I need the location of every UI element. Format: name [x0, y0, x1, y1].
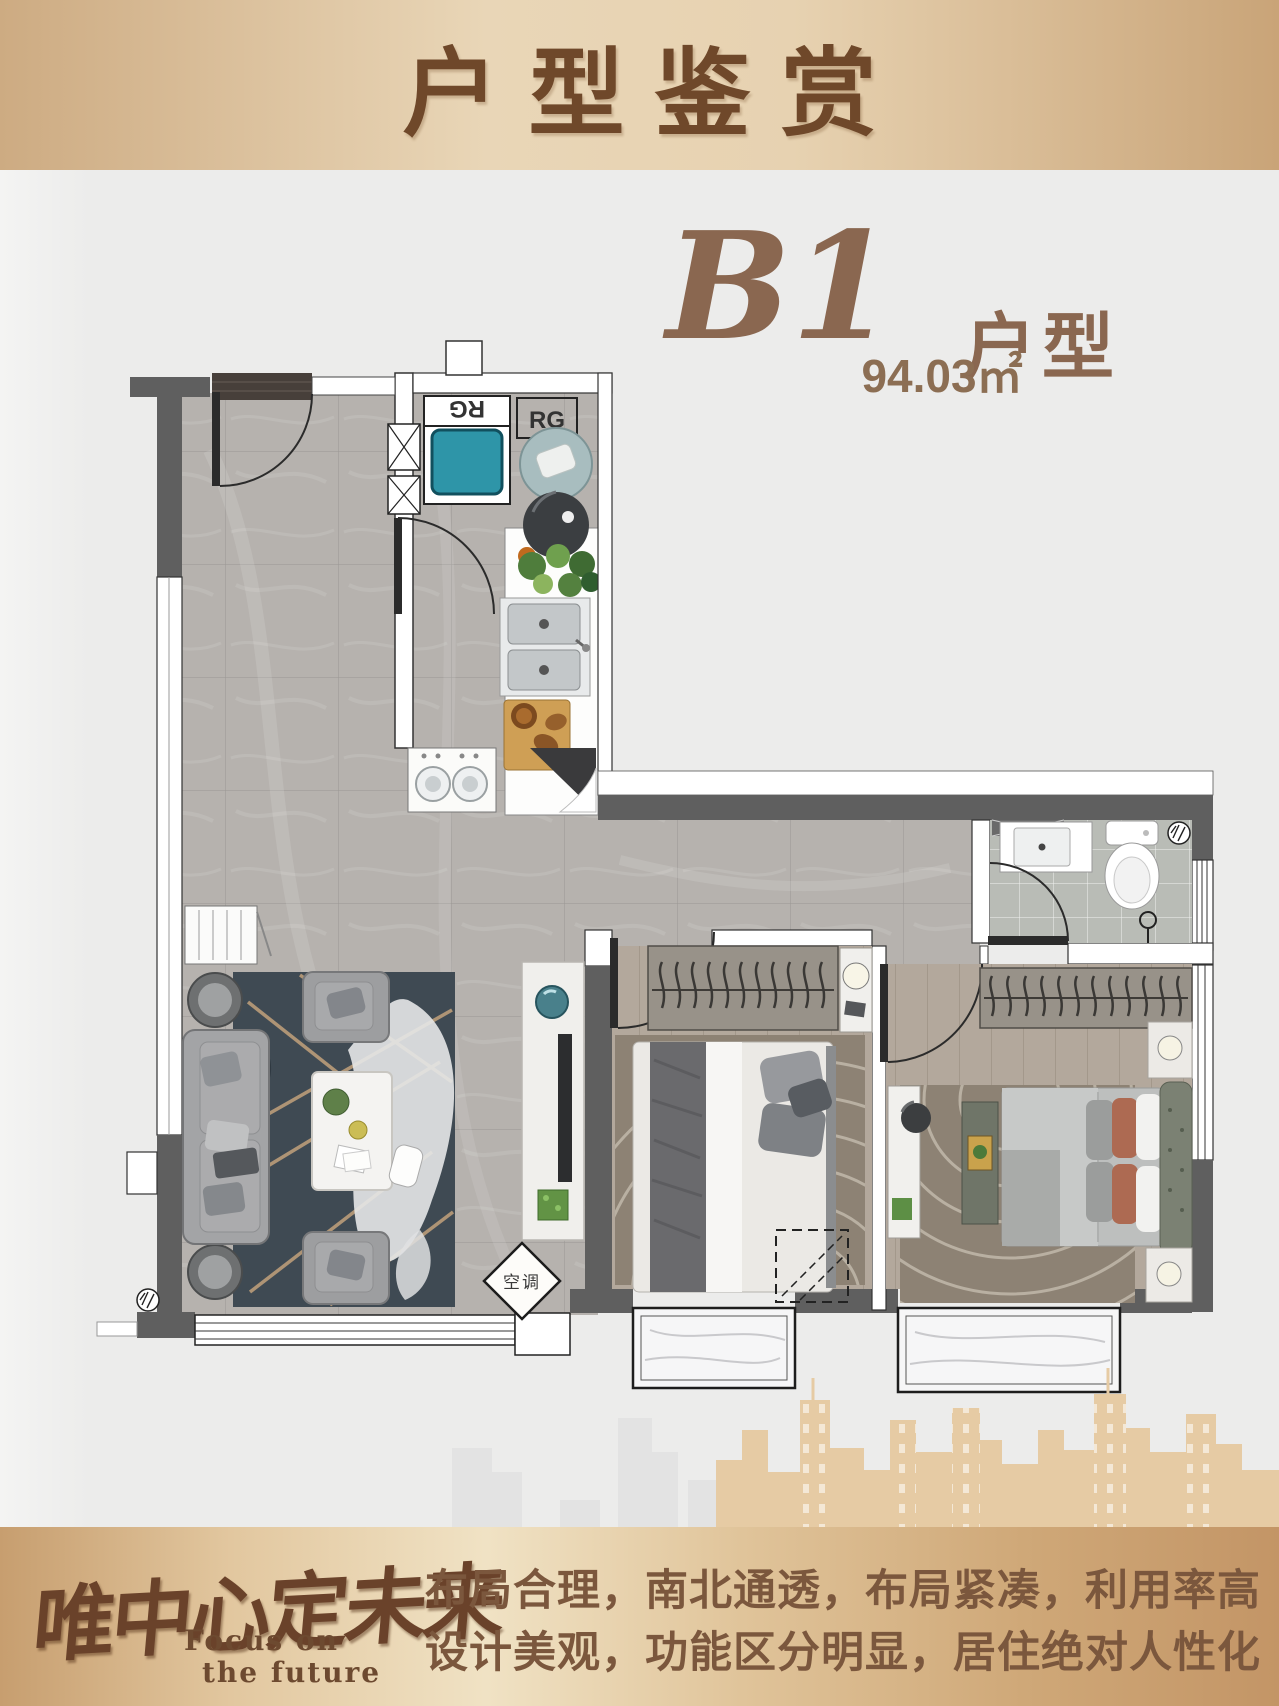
gas-stove	[408, 748, 496, 812]
brand-slogan-en-line1: Focus on	[184, 1624, 339, 1657]
toilet	[1105, 821, 1159, 909]
sofa	[183, 1030, 269, 1244]
tv	[558, 1034, 572, 1182]
page-title: 户型鉴赏	[373, 16, 907, 155]
vanity	[1000, 822, 1092, 872]
bedroom1-bed	[633, 1042, 836, 1292]
coffee-table	[312, 1072, 392, 1190]
bedroom2-bench	[962, 1102, 998, 1224]
unit-code: B1	[666, 212, 894, 360]
bedroom1-door	[610, 938, 618, 1028]
selling-point-line2: 设计美观，功能区分明显，居住绝对人性化	[425, 1622, 1245, 1684]
selling-point-line1: 布局合理，南北通透，布局紧凑，利用率高	[425, 1560, 1245, 1622]
bath-drain	[1168, 822, 1190, 844]
armchair-bottom	[303, 1232, 389, 1304]
window-sill	[127, 1152, 157, 1194]
flue	[446, 341, 482, 375]
bedroom2-bed	[1002, 1082, 1192, 1254]
unit-area: 94.03㎡	[852, 340, 1032, 406]
washer-tag-label: RG	[449, 395, 485, 422]
entry-door	[212, 392, 220, 486]
floor-drain	[137, 1289, 159, 1311]
header-banner: 户型鉴赏	[0, 0, 1279, 170]
bedroom2-window	[1192, 965, 1213, 1160]
kitchen-sink	[500, 598, 590, 696]
kitchen-door	[394, 518, 402, 614]
bathroom-door	[988, 936, 1068, 945]
ac-label-text: 空调	[503, 1273, 541, 1292]
bedroom2-wardrobe	[980, 968, 1192, 1028]
bathroom	[988, 820, 1192, 945]
bedroom2-door	[880, 964, 888, 1062]
floor-plan: RG RG	[0, 0, 1279, 1706]
living-window	[195, 1315, 515, 1345]
bedroom1-nightstand	[840, 948, 872, 1032]
brand-slogan-en-line2: the future	[202, 1656, 381, 1689]
city-skyline	[452, 1368, 1279, 1527]
armchair-top	[303, 972, 389, 1042]
bay-window-2	[898, 1308, 1120, 1392]
bedroom1-wardrobe	[648, 946, 838, 1030]
selling-points: 布局合理，南北通透，布局紧凑，利用率高 设计美观，功能区分明显，居住绝对人性化	[425, 1560, 1245, 1684]
tv-console	[522, 962, 584, 1240]
bay-window-1	[633, 1308, 795, 1388]
